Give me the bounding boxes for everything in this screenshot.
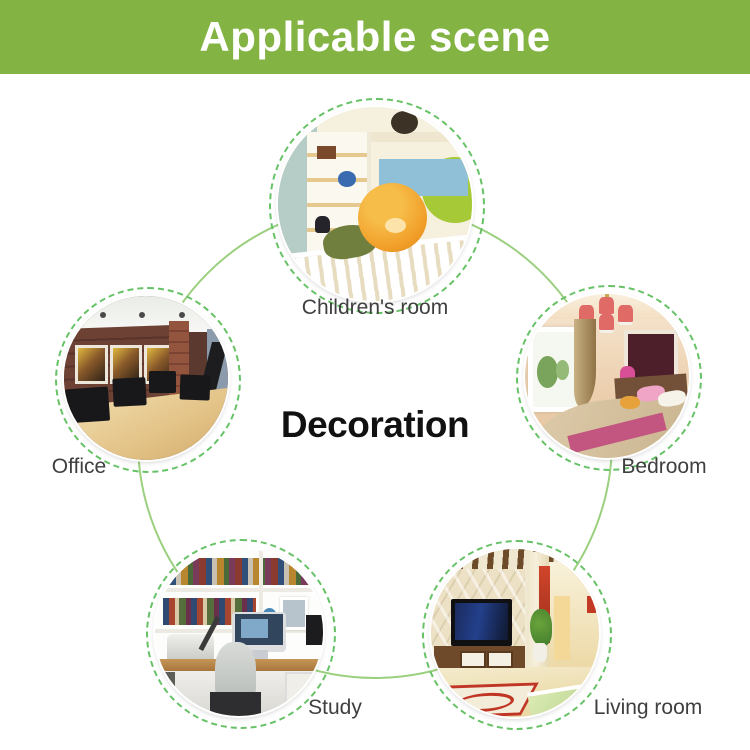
- shelf-books: [317, 146, 336, 160]
- office-monitor: [64, 386, 109, 423]
- office-chair-seat: [210, 692, 260, 716]
- chandelier-shade: [599, 314, 614, 333]
- office-monitor: [149, 371, 175, 392]
- childrens-room-photo: [278, 107, 472, 301]
- shelf-penguin-toy: [315, 216, 331, 233]
- office-monitor: [112, 377, 146, 407]
- shelf-ball: [338, 171, 355, 187]
- office-picture-frame: [75, 345, 107, 384]
- label-bedroom: Bedroom: [621, 455, 706, 479]
- warm-light-niche: [554, 596, 571, 660]
- shelf-board: [155, 588, 323, 592]
- potted-plant: [530, 609, 552, 646]
- bedroom-photo: [525, 294, 689, 458]
- office-monitor: [180, 374, 210, 400]
- tv-cabinet: [434, 646, 525, 668]
- chandelier-shade: [618, 305, 633, 324]
- label-childrens-room: Children's room: [302, 296, 448, 320]
- office-chair-back: [215, 642, 255, 699]
- center-title: Decoration: [281, 404, 469, 446]
- study-photo: [155, 548, 323, 716]
- living-room-photo: [431, 549, 599, 717]
- label-study: Study: [308, 696, 362, 720]
- desk-leg: [165, 672, 175, 716]
- window-tree: [556, 360, 569, 380]
- rug-pattern: [451, 692, 519, 713]
- plant-pot: [533, 643, 546, 661]
- tv-screen: [455, 603, 508, 641]
- cabinet-drawer: [487, 651, 513, 668]
- bed-doll: [620, 396, 640, 409]
- label-living-room: Living room: [594, 696, 703, 720]
- childrens-room-plush-toy: [391, 111, 418, 134]
- screen-window: [241, 619, 268, 638]
- childrens-room-top-shelf: [363, 132, 472, 142]
- table-ornament: [574, 690, 592, 708]
- red-accent: [587, 596, 595, 613]
- cabinet-drawer: [460, 651, 486, 668]
- bookshelf-row: [163, 558, 313, 585]
- bedroom-curtain: [574, 319, 595, 408]
- teddy-bear-muzzle: [385, 218, 406, 234]
- tv: [451, 599, 511, 646]
- secondary-screen: [306, 615, 323, 645]
- label-office: Office: [52, 455, 106, 479]
- office-photo: [64, 296, 228, 460]
